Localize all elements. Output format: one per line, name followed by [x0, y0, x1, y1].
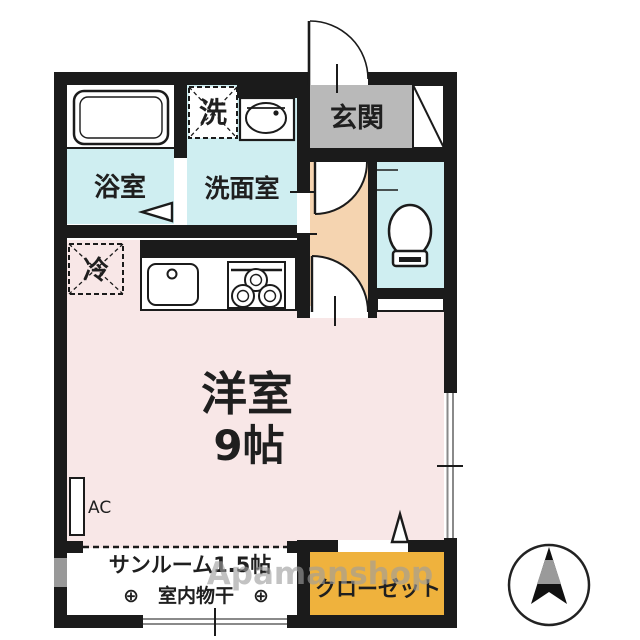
wall-washroom-right-upper	[297, 85, 310, 192]
entrance-door	[309, 21, 368, 93]
wall-washroom-bottom	[54, 225, 310, 238]
wall-right-upper	[444, 72, 457, 393]
sunroom-left-window	[54, 558, 67, 587]
main-room-label: 洋室	[201, 367, 293, 421]
fridge-label: 冷	[83, 255, 109, 286]
floor-plan-page: AC 浴室 洗 洗面室 玄関 冷 洋室 9帖 サンルーム1.5帖 ⊕ 室内物干 …	[0, 0, 640, 640]
toilet-icon	[389, 205, 431, 266]
compass-north-icon	[509, 545, 589, 625]
washroom-label: 洗面室	[204, 174, 279, 203]
shoebox	[413, 85, 444, 148]
wall-entrance-bottom	[297, 148, 457, 162]
wall-sunroom-stub-left	[54, 541, 83, 553]
wall-toilet-bottom	[368, 288, 457, 298]
stove-icon	[228, 262, 285, 308]
bathroom-label: 浴室	[94, 172, 146, 203]
entrance-label: 玄関	[330, 102, 384, 134]
washbasin-icon	[240, 98, 294, 140]
wall-bottom-left	[54, 615, 143, 628]
kitchen-counter	[140, 240, 297, 310]
washer-label: 洗	[199, 96, 227, 129]
wall-top-left	[54, 72, 310, 85]
ac-label: AC	[88, 498, 111, 518]
wall-bath-washroom	[174, 85, 187, 158]
main-room-size: 9帖	[213, 421, 284, 470]
wall-basin-stub	[237, 85, 297, 98]
wall-top-right	[368, 72, 457, 85]
watermark: Apamanshop	[207, 556, 433, 592]
wall-washroom-right-lower	[297, 238, 310, 318]
toilet-window-band	[377, 298, 444, 311]
kitchen-sink-icon	[148, 264, 198, 305]
floor-plan: AC 浴室 洗 洗面室 玄関 冷 洋室 9帖 サンルーム1.5帖 ⊕ 室内物干 …	[0, 0, 640, 640]
bathtub-icon	[74, 91, 168, 144]
